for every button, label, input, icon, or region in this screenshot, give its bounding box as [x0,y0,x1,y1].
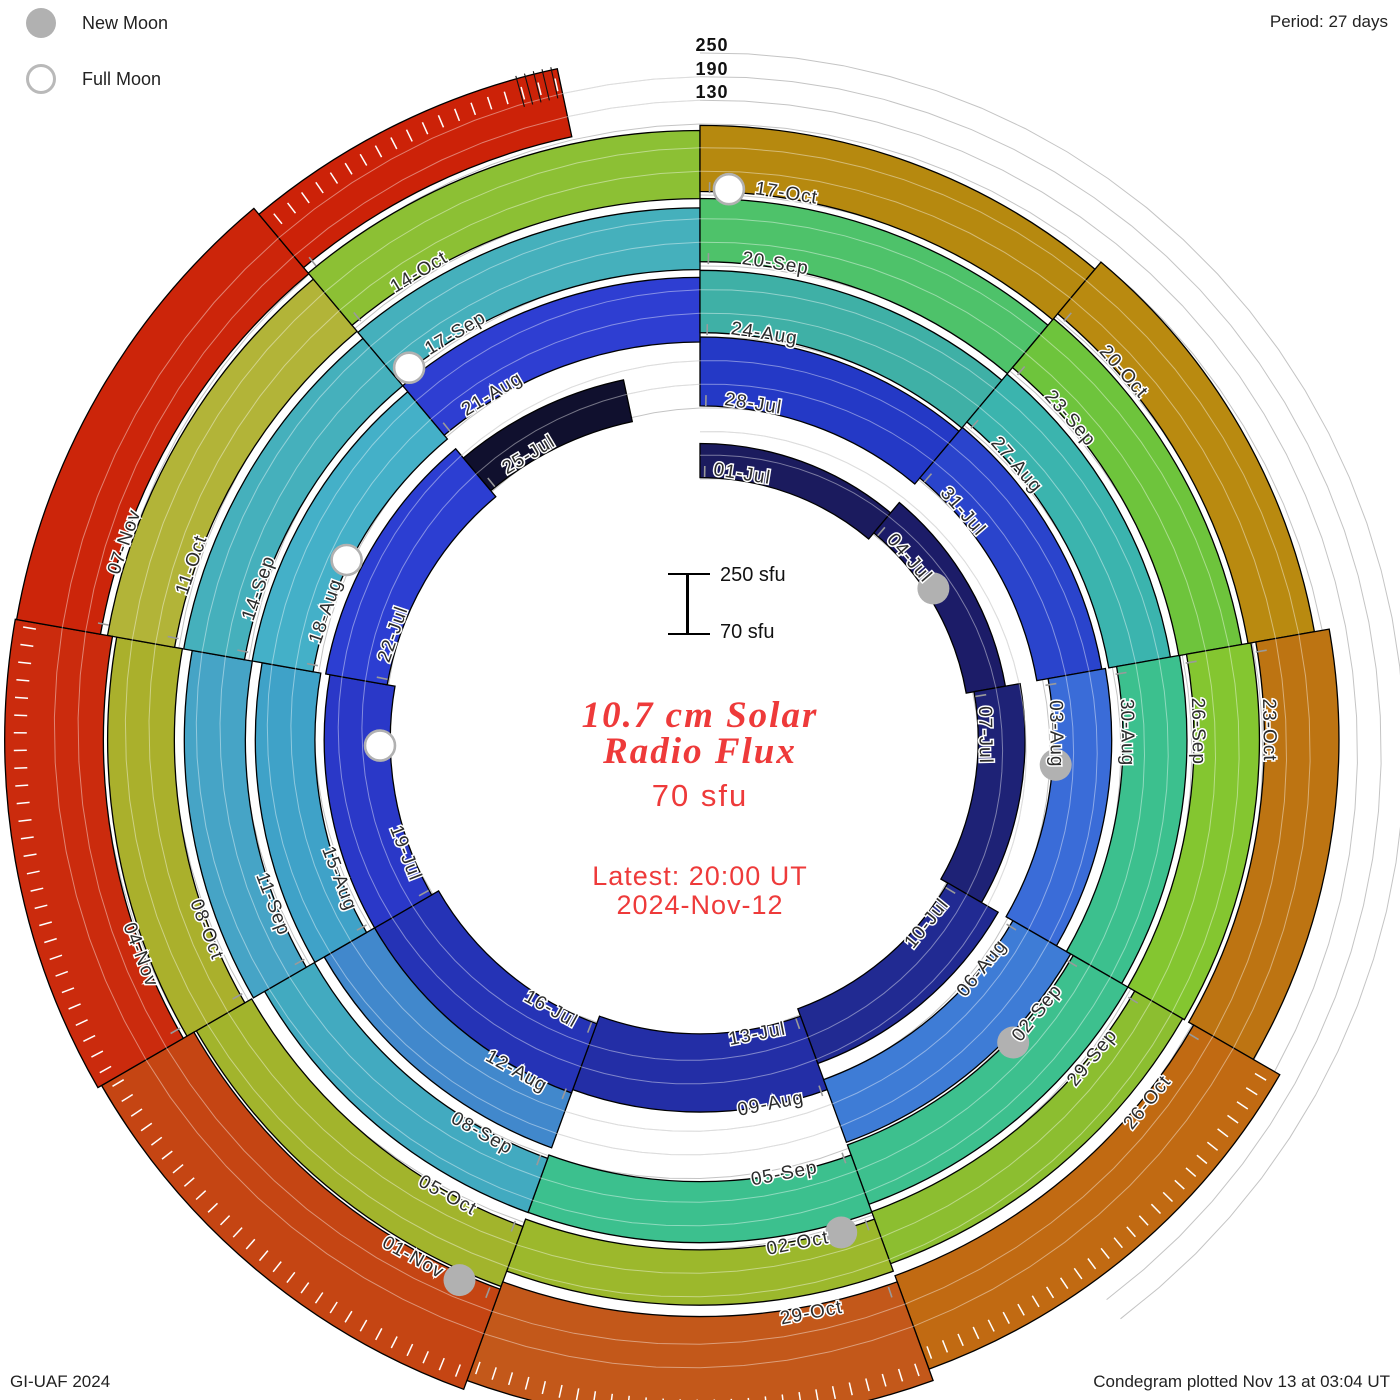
new-moon-icon [26,8,56,38]
flux-scale-bar: 250 sfu 70 sfu [668,570,788,636]
current-flux-value: 70 sfu [652,778,748,814]
credit-note: GI-UAF 2024 [10,1372,110,1392]
full-moon-icon [26,64,56,94]
legend-full-moon: Full Moon [26,64,161,94]
legend-new-moon: New Moon [26,8,168,38]
plotted-note: Condegram plotted Nov 13 at 03:04 UT [1093,1372,1390,1392]
scale-bar-bottom-tick [668,633,710,635]
chart-title-line1: 10.7 cm Solar [582,698,819,734]
scale-bar-line [686,573,689,633]
radial-scale-labels: 250 190 130 [676,34,748,105]
date-label-03-Aug: 03-Aug [1045,700,1067,768]
period-note: Period: 27 days [1270,12,1388,32]
latest-date: 2024-Nov-12 [592,891,808,920]
chart-title: 10.7 cm Solar Radio Flux [582,698,819,770]
radial-scale-190: 190 [676,58,748,82]
radial-scale-130: 130 [676,81,748,105]
latest-reading: Latest: 20:00 UT 2024-Nov-12 [592,862,808,920]
condegram-page: 01-Jul04-Jul07-Jul10-Jul13-Jul16-Jul19-J… [0,0,1400,1400]
date-label-23-Oct: 23-Oct [1258,698,1280,761]
latest-time: Latest: 20:00 UT [592,862,808,891]
new-moon-label: New Moon [82,13,168,34]
chart-title-line2: Radio Flux [582,734,819,770]
scale-bar-top-tick [668,573,710,575]
scale-bar-max-label: 250 sfu [720,564,786,587]
date-label-07-Jul: 07-Jul [974,706,996,764]
radial-scale-250: 250 [676,34,748,58]
full-moon-label: Full Moon [82,69,161,90]
scale-bar-min-label: 70 sfu [720,621,774,644]
date-label-30-Aug: 30-Aug [1116,699,1138,767]
date-label-26-Sep: 26-Sep [1187,697,1209,765]
